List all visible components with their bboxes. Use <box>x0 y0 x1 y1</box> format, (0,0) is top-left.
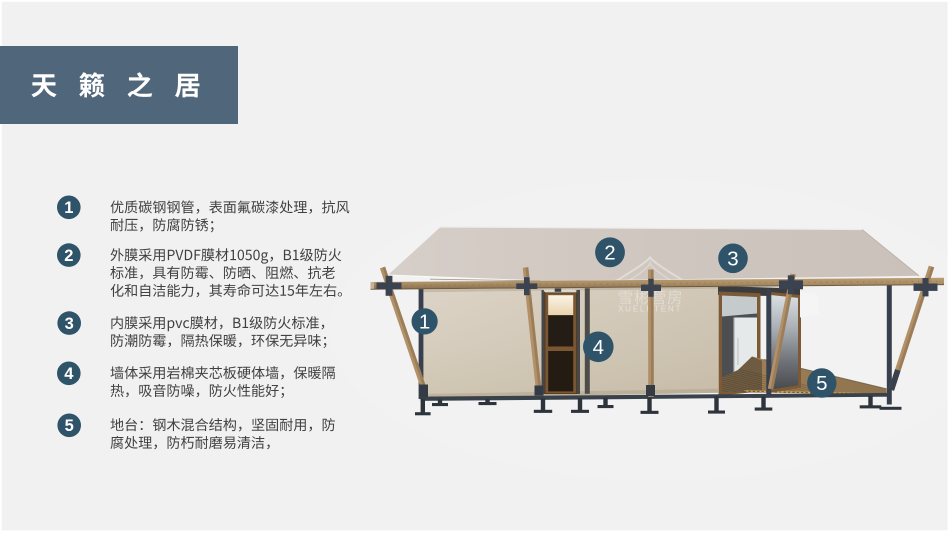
svg-text:4: 4 <box>593 336 604 359</box>
svg-text:5: 5 <box>816 372 827 395</box>
svg-text:3: 3 <box>65 315 74 333</box>
svg-text:5: 5 <box>65 417 74 435</box>
svg-text:1: 1 <box>419 310 430 333</box>
svg-text:2: 2 <box>64 247 73 265</box>
svg-text:3: 3 <box>727 247 738 270</box>
svg-text:4: 4 <box>64 365 74 383</box>
svg-text:2: 2 <box>604 241 615 264</box>
svg-text:1: 1 <box>64 199 73 217</box>
